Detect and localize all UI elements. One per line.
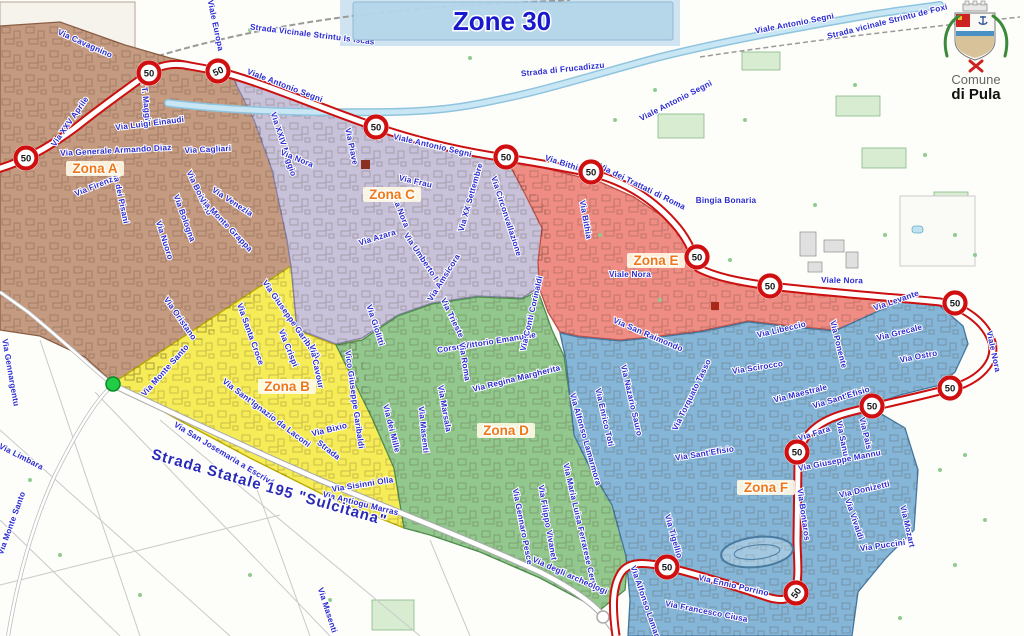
svg-text:Zona D: Zona D [483,423,529,438]
svg-text:50: 50 [692,252,703,263]
shield-sea-band [956,31,994,36]
speed-limit-50-sign: 50 [136,60,162,86]
svg-text:Zona F: Zona F [744,480,788,495]
street-label: Via Masenti [316,586,339,634]
svg-text:Zona E: Zona E [633,253,678,268]
municipality-logo: Comune di Pula [945,1,1007,103]
speed-limit-50-sign: 50 [13,145,39,171]
speed-limit-50-sign: 50 [578,159,604,185]
svg-text:50: 50 [945,383,956,394]
svg-text:50: 50 [586,167,597,178]
zone-label-e: Zona E [627,253,685,268]
crown-merlon [965,1,969,5]
speed-limit-50-sign: 50 [684,244,710,270]
svg-text:50: 50 [501,152,512,163]
pula-zone30-map: Via CavagninoViale EuropaVia XXV AprileV… [0,0,1024,636]
speed-limit-50-sign: 50 [757,273,783,299]
speed-limit-50-sign: 50 [942,290,968,316]
street-label: Viale Nora [609,270,651,279]
speed-limit-50-sign: 50 [363,114,389,140]
municipality-name-line1: Comune [951,72,1000,87]
svg-text:50: 50 [792,447,803,458]
page-title: Zone 30 [453,6,551,36]
zone-label-a: Zona A [66,161,124,176]
zone-label-d: Zona D [477,423,535,438]
street-label: Via Limbara [0,442,45,472]
ribbon-icon [970,61,982,71]
bingia-bonaria-buildings [800,232,858,272]
svg-text:50: 50 [21,153,32,164]
roundabout-south [597,611,609,623]
speed-limit-50-sign: 50 [784,439,810,465]
roundabout-green [106,377,120,391]
speed-limit-50-sign: 50 [859,393,885,419]
svg-text:Zona A: Zona A [72,161,117,176]
svg-text:50: 50 [144,68,155,79]
street-label: Viale Europa [206,0,226,52]
map-page: Via CavagninoViale EuropaVia XXV AprileV… [0,0,1024,636]
zone-label-c: Zona C [363,187,421,202]
svg-text:Zona C: Zona C [369,187,415,202]
speed-limit-50-sign: 50 [654,554,680,580]
speed-limit-50-sign: 50 [937,375,963,401]
zone-label-b: Zona B [258,379,316,394]
svg-text:50: 50 [950,298,961,309]
pool [912,226,923,233]
street-label: Via Monte Santo [0,490,27,556]
svg-text:50: 50 [765,281,776,292]
villa-plot [900,196,975,266]
svg-text:50: 50 [371,122,382,133]
street-label: Bingia Bonaria [696,196,757,205]
crown-merlon [981,1,985,5]
title-banner: Zone 30 [353,2,673,40]
shield-beach [956,36,994,58]
church-marker [361,160,370,169]
street-label: Via Gennargentu [0,338,21,407]
monument-marker [711,302,719,310]
zone-label-f: Zona F [737,480,795,495]
svg-text:50: 50 [867,401,878,412]
svg-text:Zona B: Zona B [264,379,310,394]
street-label: Viale Nora [821,276,863,286]
municipality-name-line2: di Pula [951,86,1001,103]
crown-merlon [973,1,977,5]
speed-limit-50-sign: 50 [493,144,519,170]
svg-text:50: 50 [662,562,673,573]
